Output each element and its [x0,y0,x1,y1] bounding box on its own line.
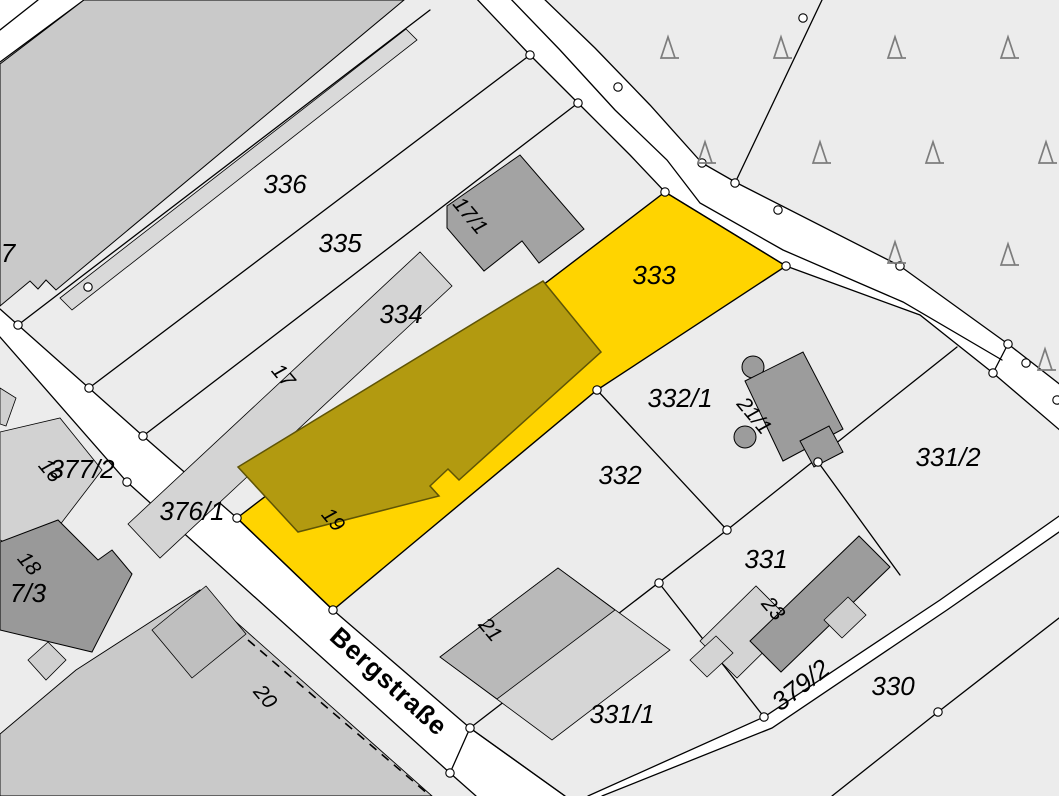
parcel-label-376-1: 376/1 [159,496,224,526]
parcel-label-336: 336 [263,169,307,199]
boundary-point-icon [774,206,782,214]
parcel-label-331: 331 [744,544,787,574]
boundary-point-icon [723,526,731,534]
boundary-point-icon [139,432,147,440]
boundary-point-icon [934,708,942,716]
boundary-point-icon [593,386,601,394]
boundary-point-icon [655,579,663,587]
boundary-point-icon [446,769,454,777]
boundary-point-icon [1053,396,1059,404]
parcel-label-332-1: 332/1 [647,383,712,413]
boundary-point-icon [814,458,822,466]
boundary-point-icon [233,514,241,522]
boundary-point-icon [84,283,92,291]
parcel-label-330: 330 [871,671,915,701]
parcel-label-331-2: 331/2 [915,442,981,472]
cadastral-map-view[interactable]: 336335334333332/1332331/2331330331/1377/… [0,0,1059,796]
boundary-point-icon [123,478,131,486]
boundary-point-icon [799,14,807,22]
boundary-point-icon [661,188,669,196]
boundary-point-icon [989,369,997,377]
boundary-point-icon [760,713,768,721]
parcel-label-331-1: 331/1 [589,699,654,729]
boundary-point-icon [466,724,474,732]
boundary-point-icon [614,83,622,91]
parcel-label-7: 7 [1,238,17,268]
boundary-point-icon [526,51,534,59]
parcel-label-333: 333 [632,260,676,290]
boundary-point-icon [574,99,582,107]
boundary-point-icon [782,262,790,270]
parcel-label-335: 335 [318,228,362,258]
parcel-label-332: 332 [598,460,642,490]
boundary-point-icon [329,606,337,614]
parcel-label-7-3: 7/3 [10,578,47,608]
boundary-point-icon [1004,340,1012,348]
boundary-point-icon [14,321,22,329]
map-canvas[interactable]: 336335334333332/1332331/2331330331/1377/… [0,0,1059,796]
boundary-point-icon [1022,359,1030,367]
boundary-point-icon [85,384,93,392]
boundary-point-icon [731,179,739,187]
parcel-label-334: 334 [379,299,422,329]
